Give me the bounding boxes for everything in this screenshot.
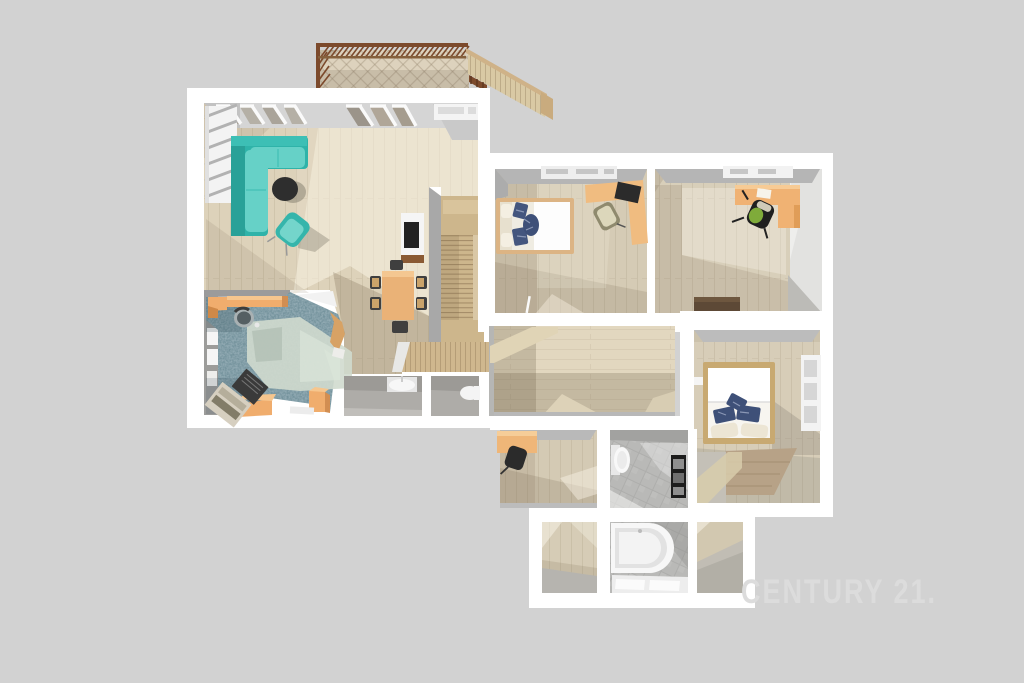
svg-text:CENTURY 21.: CENTURY 21.	[741, 573, 937, 611]
